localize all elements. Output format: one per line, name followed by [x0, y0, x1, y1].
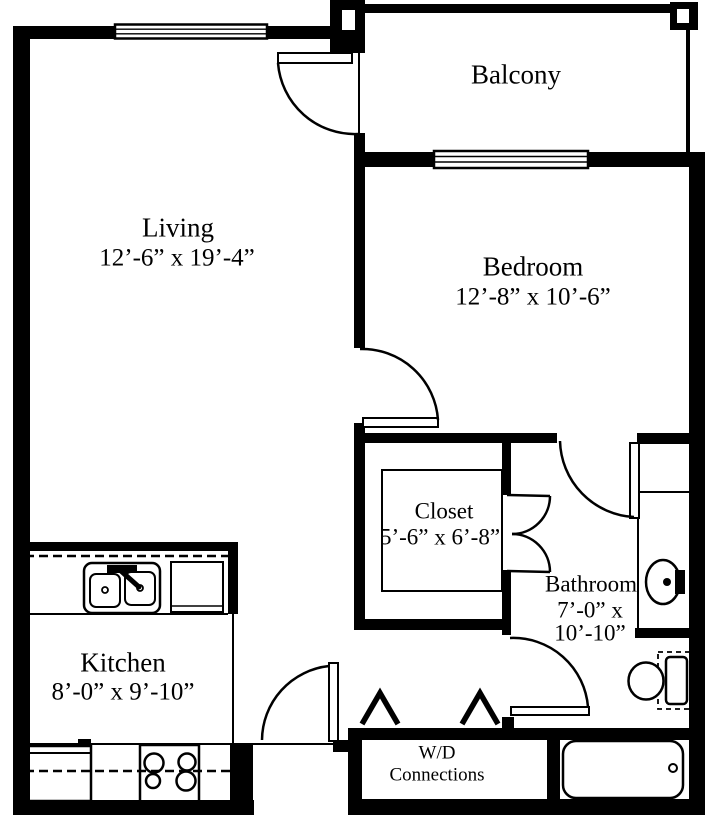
closet-double-doors — [507, 495, 550, 572]
wall-closet-left — [354, 423, 365, 630]
bathroom-label: Bathroom — [545, 573, 637, 596]
wall-closet-bath-upper — [502, 440, 511, 495]
wall-living-bedroom-divider — [354, 133, 365, 348]
laundry-label-2: Connections — [390, 766, 485, 785]
balcony-post-right-notch — [677, 9, 689, 23]
laundry-bifold-indicators — [362, 693, 498, 724]
dishwasher — [171, 562, 223, 612]
door-entry — [262, 663, 338, 741]
kitchen-counters — [25, 556, 348, 771]
wall-laundry-right — [547, 728, 560, 815]
bathroom-sink — [646, 560, 685, 604]
bathroom-dims-1: 7’-0” x — [557, 599, 623, 622]
living-label: Living — [142, 215, 214, 242]
door-balcony — [278, 53, 359, 135]
kitchen-faucet — [107, 565, 139, 587]
laundry-label-1: W/D — [419, 744, 456, 763]
bedroom-dims: 12’-8” x 10’-6” — [455, 285, 611, 310]
floor-plan: Living 12’-6” x 19’-4” Balcony Bedroom 1… — [0, 0, 714, 815]
wall-kitchen-top — [13, 542, 238, 551]
wall-bedroom-bath-left — [354, 433, 557, 443]
balcony-railing-right — [686, 28, 690, 154]
wall-hall-south — [348, 728, 704, 740]
bathtub — [563, 741, 683, 798]
wall-kitchen-right-upper — [228, 542, 238, 614]
wall-bedroom-top-right — [588, 152, 704, 167]
balcony-post-left-notch — [342, 10, 355, 30]
window-bedroom — [434, 151, 588, 168]
living-dims: 12’-6” x 19’-4” — [99, 246, 255, 271]
kitchen-label: Kitchen — [80, 650, 165, 677]
closet-dims: 5’-6” x 6’-8” — [380, 526, 500, 549]
balcony-label: Balcony — [471, 62, 561, 89]
kitchen-dims: 8’-0” x 9’-10” — [52, 680, 195, 705]
wall-top-right-of-window — [267, 26, 332, 39]
wall-closet-bottom — [354, 619, 510, 630]
wall-entry-left-stub — [230, 743, 253, 808]
door-bathroom-hall-side — [510, 638, 589, 715]
wall-bedroom-bath-right — [637, 433, 690, 443]
wall-bottom-right — [348, 799, 704, 815]
wall-left — [13, 26, 30, 815]
toilet — [629, 652, 691, 709]
bathroom-dims-2: 10’-10” — [554, 622, 626, 645]
bedroom-label: Bedroom — [483, 254, 584, 281]
wall-closet-bath-lower — [502, 570, 511, 635]
stove — [140, 745, 199, 802]
wall-laundry-left — [348, 728, 362, 815]
wall-bedroom-top-left — [354, 152, 434, 167]
closet-label: Closet — [415, 500, 474, 523]
balcony-railing-top — [365, 4, 670, 13]
door-bathroom-bedroom-side — [560, 441, 639, 518]
door-bedroom — [360, 349, 438, 427]
wall-right — [689, 152, 705, 815]
window-living — [115, 25, 267, 39]
